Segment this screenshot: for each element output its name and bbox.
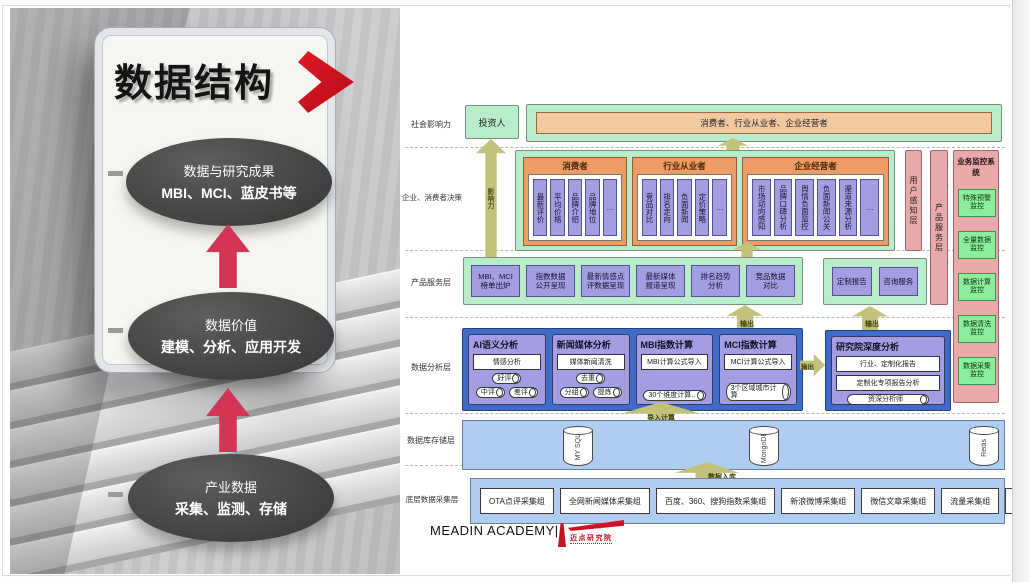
decision-item: 最新评价 xyxy=(533,179,547,236)
decision-item: 负面新闻公关 xyxy=(817,179,836,236)
logo-subline xyxy=(570,543,612,544)
row-label-collection: 底层数据采集层 xyxy=(400,494,464,505)
module-box: 定制化专项报告分析 xyxy=(836,375,940,391)
decision-item: 品牌介绍 xyxy=(568,179,582,236)
db-label: MY SQL xyxy=(575,434,582,460)
section-title: 企业经营者 xyxy=(743,158,888,174)
module-title: 研究院深度分析 xyxy=(836,340,899,353)
decision-item: 舆情负面监控 xyxy=(795,179,814,236)
enterprise-section: 企业经营者 市场动向感知 品牌口碑分析 舆情负面监控 负面新闻公关 渠道来源分析… xyxy=(742,157,889,246)
product-item: 指数数据公开呈现 xyxy=(526,265,575,297)
row-label-social: 社会影响力 xyxy=(400,119,462,130)
decision-item: … xyxy=(603,179,617,236)
module-box: MCI计算公式导入 xyxy=(724,354,792,370)
product-item: 排名趋势分析 xyxy=(691,265,740,297)
logo-banner-icon xyxy=(568,520,624,531)
mysql-database-icon: MY SQL xyxy=(563,426,593,466)
logo-text: 迈点研究院 xyxy=(570,533,613,543)
output-arrow-label: 输出 xyxy=(865,319,879,329)
left-photo-panel: 数据结构 数据与研究成果 MBI、MCI、蓝皮书等 数据价值 建模、分析、应用开… xyxy=(10,8,400,574)
decision-item: 定价策略 xyxy=(695,179,710,236)
monitor-item: 数据计算监控 xyxy=(958,273,996,301)
stage-ellipse-data: 产业数据 采集、监测、存储 xyxy=(128,454,334,542)
architecture-diagram: 社会影响力 企业、消费者决策 产品服务层 数据分析层 数据库存储层 底层数据采集… xyxy=(400,8,1010,574)
module-box: MBI计算公式导入 xyxy=(641,354,709,370)
stage-line2: 建模、分析、应用开发 xyxy=(161,337,301,357)
module-title: 新闻媒体分析 xyxy=(557,338,611,351)
monitor-item: 数据采集监控 xyxy=(958,357,996,385)
section-title: 行业从业者 xyxy=(633,158,736,174)
product-service-column-label: 产品服务层 xyxy=(934,203,945,253)
investor-box: 投资人 xyxy=(465,105,519,139)
product-item: 最新情感点评数据呈现 xyxy=(581,265,630,297)
custom-service-container: 定制报告 咨询服务 xyxy=(823,258,927,305)
decision-container: 消费者 最新评价 平均价格 品牌介绍 品牌地位 … 行业从业者 竞品对比 排名走… xyxy=(515,150,895,251)
collection-layer: OTA点评采集组 全网新闻媒体采集组 百度、360、搜狗指数采集组 新浪微博采集… xyxy=(470,478,1005,524)
stage-ellipse-results: 数据与研究成果 MBI、MCI、蓝皮书等 xyxy=(126,138,332,226)
decision-item: 负面新闻 xyxy=(677,179,692,236)
product-item: 竞品数据对比 xyxy=(746,265,795,297)
product-item: MBI、MCI榜单出炉 xyxy=(471,265,520,297)
consumer-section: 消费者 最新评价 平均价格 品牌介绍 品牌地位 … xyxy=(523,157,627,246)
product-item: 最新媒体报道呈现 xyxy=(636,265,685,297)
storage-layer: MY SQL MongoDB Redis xyxy=(462,420,1005,470)
module-pill: 中评 xyxy=(476,387,505,398)
collection-group: 流量采集组 xyxy=(941,488,999,514)
output-arrow-label: 输出 xyxy=(801,361,814,371)
row-label-product: 产品服务层 xyxy=(400,277,462,288)
stage-line2: 采集、监测、存储 xyxy=(175,499,287,519)
row-label-decision: 企业、消费者决策 xyxy=(400,192,464,203)
monitor-item: 全量数据监控 xyxy=(958,231,996,259)
analysis-container: AI语义分析 情感分析 好评 中评 差评 新闻媒体分析 媒体新闻清洗 去重 分组… xyxy=(462,328,803,411)
layer-divider xyxy=(405,413,1005,414)
stage-line1: 数据价值 xyxy=(205,315,257,334)
collection-group: OTA点评采集组 xyxy=(480,488,554,514)
section-title: 消费者 xyxy=(524,158,626,174)
page-edge xyxy=(1012,0,1030,582)
tick-dash xyxy=(108,492,123,497)
audience-bar: 消费者、行业从业者、企业经营者 xyxy=(536,112,992,134)
stage-line2: MBI、MCI、蓝皮书等 xyxy=(161,183,296,203)
tick-dash xyxy=(108,171,123,176)
audience-container: 消费者、行业从业者、企业经营者 xyxy=(526,104,1002,142)
module-title: MBI指数计算 xyxy=(641,338,694,351)
stage-line1: 产业数据 xyxy=(205,477,257,496)
logo-tower-icon xyxy=(558,523,566,547)
ai-semantic-module: AI语义分析 情感分析 好评 中评 差评 xyxy=(468,334,546,405)
collection-group: 新浪微博采集组 xyxy=(781,488,855,514)
stage-ellipse-value: 数据价值 建模、分析、应用开发 xyxy=(128,292,334,380)
industry-section: 行业从业者 竞品对比 排名走向 负面新闻 定价策略 … xyxy=(632,157,737,246)
decision-item: 排名走向 xyxy=(660,179,675,236)
decision-item: … xyxy=(712,179,727,236)
decision-item: 品牌地位 xyxy=(585,179,599,236)
product-service-container: MBI、MCI榜单出炉 指数数据公开呈现 最新情感点评数据呈现 最新媒体报道呈现… xyxy=(463,257,803,305)
monitor-item: 数据清洗监控 xyxy=(958,315,996,343)
monitor-item: 特殊预警监控 xyxy=(958,189,996,217)
tick-dash xyxy=(108,328,123,333)
monitor-title: 业务监控系统 xyxy=(954,156,998,178)
db-label: Redis xyxy=(981,439,988,457)
module-title: MCI指数计算 xyxy=(724,338,777,351)
decision-item: 品牌口碑分析 xyxy=(774,179,793,236)
module-pill: 差评 xyxy=(509,387,538,398)
redis-database-icon: Redis xyxy=(969,426,999,466)
decision-item: 平均价格 xyxy=(550,179,564,236)
module-box: 媒体新闻清洗 xyxy=(557,354,625,370)
module-box: 情感分析 xyxy=(473,354,541,370)
row-label-analysis: 数据分析层 xyxy=(400,362,462,373)
business-monitor-system: 业务监控系统 特殊预警监控 全量数据监控 数据计算监控 数据清洗监控 数据采集监… xyxy=(953,150,999,403)
collection-group: 微信文章采集组 xyxy=(861,488,935,514)
module-pill: 提炼 xyxy=(593,387,622,398)
layer-divider xyxy=(405,317,1005,318)
db-label: MongoDB xyxy=(761,432,768,463)
influence-arrow-label: 影响力 xyxy=(485,188,495,209)
mbi-index-module: MBI指数计算 MBI计算公式导入 30个维度计算.. xyxy=(636,334,714,405)
row-label-storage: 数据库存储层 xyxy=(400,435,462,446)
custom-service-item: 咨询服务 xyxy=(879,267,919,296)
stage-line1: 数据与研究成果 xyxy=(183,161,274,180)
decision-item: … xyxy=(860,179,879,236)
module-pill: 资深分析师 xyxy=(847,394,928,405)
mci-index-module: MCI指数计算 MCI计算公式导入 3个区域城市计算 xyxy=(719,334,797,405)
decision-item: 竞品对比 xyxy=(642,179,657,236)
meadin-logo: 迈点研究院 xyxy=(558,520,642,554)
module-title: AI语义分析 xyxy=(473,338,518,351)
news-media-module: 新闻媒体分析 媒体新闻清洗 去重 分组 提炼 xyxy=(552,334,630,405)
page-title: 数据结构 xyxy=(114,52,274,107)
mongodb-database-icon: MongoDB xyxy=(749,426,779,466)
research-module: 研究院深度分析 行业、定制化报告 定制化专项报告分析 资深分析师 xyxy=(831,336,945,405)
decision-item: 市场动向感知 xyxy=(752,179,771,236)
module-pill: 好评 xyxy=(492,373,521,384)
collection-group: 全网新闻媒体采集组 xyxy=(560,488,650,514)
module-pill: 去重 xyxy=(576,373,605,384)
module-box: 行业、定制化报告 xyxy=(836,356,940,372)
user-perception-layer: 用户感知层 xyxy=(905,150,922,251)
decision-item: 渠道来源分析 xyxy=(839,179,858,236)
research-container: 研究院深度分析 行业、定制化报告 定制化专项报告分析 资深分析师 xyxy=(825,330,951,411)
brand-text: MEADIN ACADEMY| xyxy=(430,523,559,538)
module-pill: 3个区域城市计算 xyxy=(726,383,791,401)
custom-service-item: 定制报告 xyxy=(832,267,872,296)
collection-group: 百度、360、搜狗指数采集组 xyxy=(656,488,775,514)
module-pill: 分组 xyxy=(560,387,589,398)
product-service-column: 产品服务层 xyxy=(930,150,948,305)
module-pill: 30个维度计算.. xyxy=(643,390,705,401)
user-perception-label: 用户感知层 xyxy=(908,176,919,226)
